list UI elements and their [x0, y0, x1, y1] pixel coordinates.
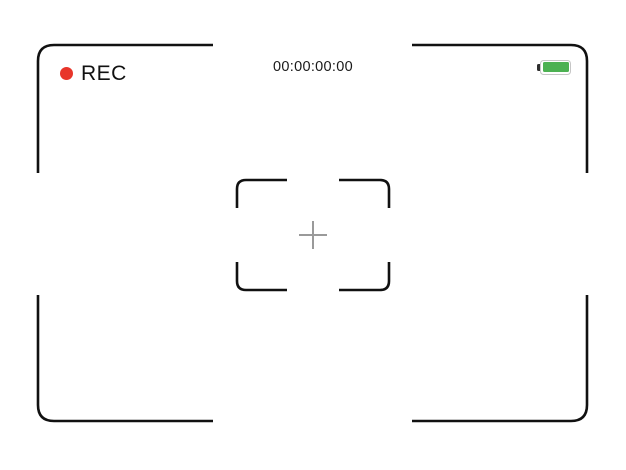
frame-corner-bottom-left: [38, 295, 213, 421]
camera-viewfinder: REC 00:00:00:00: [0, 0, 626, 470]
battery-fill: [543, 62, 569, 72]
focus-corner-top-right: [339, 180, 389, 208]
frame-corner-bottom-right: [412, 295, 587, 421]
timecode: 00:00:00:00: [0, 60, 626, 75]
focus-corner-bottom-left: [237, 262, 287, 290]
battery-icon: [537, 59, 573, 75]
focus-corner-top-left: [237, 180, 287, 208]
focus-corner-bottom-right: [339, 262, 389, 290]
crosshair-icon: [299, 221, 327, 249]
battery-body: [540, 60, 571, 75]
